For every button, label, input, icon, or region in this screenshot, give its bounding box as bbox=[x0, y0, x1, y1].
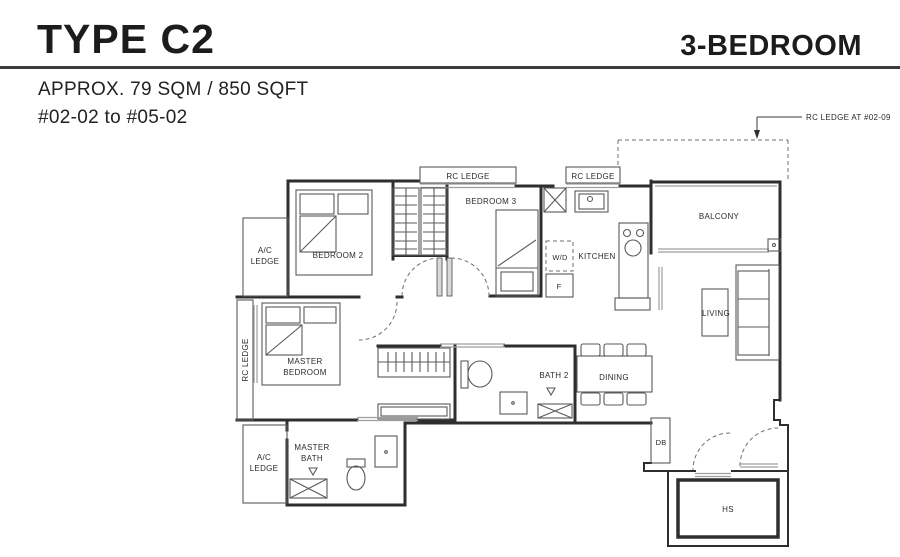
rc-ledge-side-label: RC LEDGE bbox=[241, 338, 250, 381]
master-bedroom-label-2: BEDROOM bbox=[283, 368, 326, 377]
living-partition-glazing bbox=[659, 267, 662, 310]
ac-ledge-bottom-label-1: A/C bbox=[257, 453, 271, 462]
rc-ledge-a-label: RC LEDGE bbox=[446, 172, 489, 181]
ac-ledge-top-label-2: LEDGE bbox=[251, 257, 280, 266]
living-sofa bbox=[736, 265, 779, 360]
bedroom3-bed bbox=[496, 210, 538, 296]
rc-ledge-dashed-outline bbox=[618, 140, 788, 181]
bedroom-door-leaves bbox=[402, 258, 489, 296]
rc-ledge-callout-leader bbox=[754, 117, 802, 139]
bath2-label: BATH 2 bbox=[539, 371, 568, 380]
bath2-fixtures bbox=[440, 344, 572, 418]
kitchen-exhaust-box bbox=[544, 188, 566, 212]
entry-doors bbox=[693, 428, 778, 477]
master-bath-label-1: MASTER bbox=[294, 443, 329, 452]
hs-label: HS bbox=[722, 505, 734, 514]
ac-ledge-bottom-label-2: LEDGE bbox=[250, 464, 279, 473]
kitchen-label: KITCHEN bbox=[578, 252, 615, 261]
living-label: LIVING bbox=[702, 309, 730, 318]
fridge-label: F bbox=[557, 282, 562, 291]
leader-arrow-icon bbox=[754, 130, 760, 139]
floor-plan-svg: RC LEDGE AT #02-09 bbox=[0, 0, 900, 557]
balcony-label: BALCONY bbox=[699, 212, 740, 221]
kitchen-sink bbox=[575, 191, 608, 212]
washer-dryer-label: W/D bbox=[552, 253, 568, 262]
master-wardrobe bbox=[378, 348, 450, 419]
master-bedroom-label-1: MASTER bbox=[287, 357, 322, 366]
bedroom2-bed bbox=[296, 190, 372, 275]
floorplan-page: TYPE C2 3-BEDROOM APPROX. 79 SQM / 850 S… bbox=[0, 0, 900, 557]
bedroom3-label: BEDROOM 3 bbox=[466, 197, 517, 206]
master-bath-label-2: BATH bbox=[301, 454, 323, 463]
dining-label: DINING bbox=[599, 373, 629, 382]
rc-ledge-b-label: RC LEDGE bbox=[571, 172, 614, 181]
bedroom-wardrobes bbox=[393, 188, 447, 255]
kitchen-island-stove bbox=[615, 223, 650, 310]
master-bedroom-door-arc bbox=[359, 302, 397, 340]
ac-ledge-top-label-1: A/C bbox=[258, 246, 272, 255]
rc-ledge-callout-label: RC LEDGE AT #02-09 bbox=[806, 113, 891, 122]
bedroom2-label: BEDROOM 2 bbox=[313, 251, 364, 260]
db-label: DB bbox=[656, 438, 667, 447]
